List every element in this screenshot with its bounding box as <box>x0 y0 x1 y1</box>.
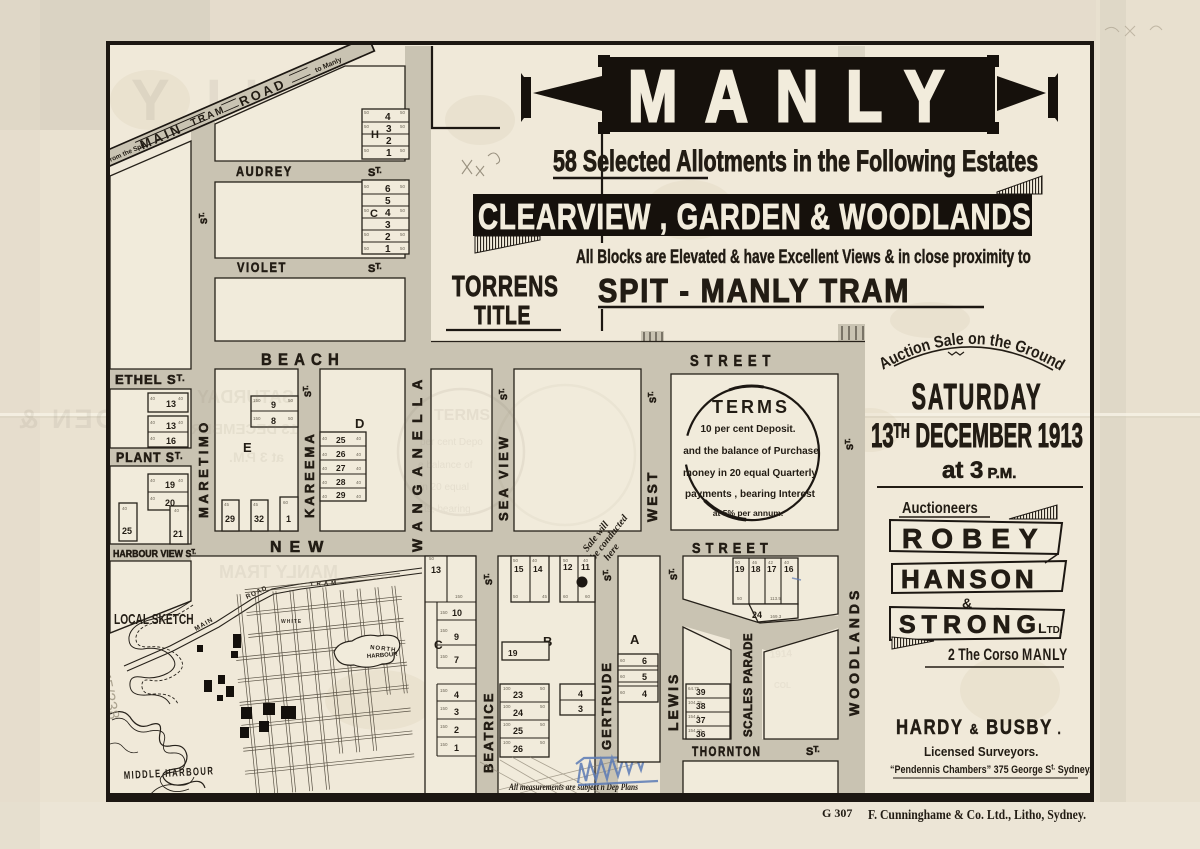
svg-text:11: 11 <box>581 562 590 572</box>
svg-text:100: 100 <box>503 686 511 691</box>
svg-text:50: 50 <box>400 110 406 115</box>
svg-text:13 DECEMBER: 13 DECEMBER <box>191 421 298 438</box>
svg-text:Licensed Surveyors.: Licensed Surveyors. <box>924 744 1038 759</box>
svg-text:40: 40 <box>356 494 362 499</box>
svg-text:at 3 P.M.: at 3 P.M. <box>229 449 284 465</box>
svg-text:SCALES PARADE: SCALES PARADE <box>743 633 755 737</box>
svg-text:150: 150 <box>440 742 448 747</box>
svg-text:ROBEY: ROBEY <box>902 523 1047 554</box>
svg-text:104.75: 104.75 <box>688 700 702 705</box>
svg-text:9: 9 <box>454 632 459 642</box>
svg-text:29: 29 <box>336 490 346 500</box>
svg-text:40: 40 <box>122 506 128 511</box>
svg-text:40: 40 <box>322 436 328 441</box>
svg-text:60: 60 <box>563 594 569 599</box>
svg-text:STREET: STREET <box>690 353 776 370</box>
svg-text:17: 17 <box>767 564 777 574</box>
svg-text:5: 5 <box>385 196 391 207</box>
svg-text:113.5: 113.5 <box>770 596 781 601</box>
svg-text:150: 150 <box>253 398 261 403</box>
svg-text:payments , bearing Interest: payments , bearing Interest <box>685 489 816 500</box>
svg-text:50: 50 <box>364 110 370 115</box>
svg-text:14: 14 <box>533 564 543 574</box>
svg-text:50: 50 <box>364 232 370 237</box>
svg-text:50: 50 <box>364 124 370 129</box>
svg-text:CLEARVIEW , GARDEN & WOODLANDS: CLEARVIEW , GARDEN & WOODLANDS <box>478 197 1031 237</box>
svg-text:40: 40 <box>174 508 180 513</box>
svg-text:60: 60 <box>283 500 289 505</box>
svg-text:WHITE: WHITE <box>281 619 302 625</box>
svg-text:4: 4 <box>578 689 583 699</box>
svg-text:100: 100 <box>503 704 511 709</box>
svg-text:150: 150 <box>440 610 448 615</box>
svg-text:VIOLET: VIOLET <box>237 260 287 275</box>
svg-text:6: 6 <box>385 184 391 195</box>
svg-text:100: 100 <box>503 740 511 745</box>
svg-text:16: 16 <box>784 564 794 574</box>
svg-text:6: 6 <box>642 656 647 666</box>
svg-text:KAREEMA: KAREEMA <box>302 431 317 518</box>
svg-text:40: 40 <box>150 420 156 425</box>
svg-text:SPIT - MANLY TRAM: SPIT - MANLY TRAM <box>598 272 910 309</box>
svg-text:16: 16 <box>166 436 176 446</box>
svg-text:STREET: STREET <box>692 539 773 556</box>
svg-text:4: 4 <box>454 690 459 700</box>
svg-text:A: A <box>630 632 640 647</box>
svg-text:50: 50 <box>400 232 406 237</box>
svg-text:STRONG: STRONG <box>899 611 1042 639</box>
svg-text:BEATRICE: BEATRICE <box>481 692 496 773</box>
svg-text:12: 12 <box>563 562 573 572</box>
svg-text:21: 21 <box>173 529 183 539</box>
svg-text:50: 50 <box>400 246 406 251</box>
svg-text:SATURDAY: SATURDAY <box>912 377 1043 417</box>
svg-text:PLANT ST.: PLANT ST. <box>116 449 183 465</box>
svg-text:25: 25 <box>336 435 346 445</box>
svg-text:TITLE: TITLE <box>474 300 531 330</box>
svg-text:TERMS: TERMS <box>434 407 490 424</box>
svg-text:50: 50 <box>429 556 435 561</box>
svg-text:50: 50 <box>513 558 519 563</box>
svg-text:154.10: 154.10 <box>688 728 702 733</box>
svg-text:SATURDAY: SATURDAY <box>197 387 294 407</box>
svg-text:1: 1 <box>286 514 291 524</box>
svg-text:150: 150 <box>440 688 448 693</box>
svg-text:3: 3 <box>578 704 583 714</box>
svg-text:50: 50 <box>288 398 294 403</box>
svg-text:C: C <box>434 638 443 652</box>
svg-text:G 307: G 307 <box>822 806 852 820</box>
svg-text:40: 40 <box>150 496 156 501</box>
svg-text:60: 60 <box>620 690 626 695</box>
svg-text:40: 40 <box>150 436 156 441</box>
svg-text:25: 25 <box>513 726 523 736</box>
svg-text:40: 40 <box>322 466 328 471</box>
svg-text:46: 46 <box>752 560 758 565</box>
svg-text:13: 13 <box>431 565 441 575</box>
svg-text:13: 13 <box>166 421 176 431</box>
svg-text:40: 40 <box>784 560 790 565</box>
svg-text:18: 18 <box>751 564 761 574</box>
svg-text:40: 40 <box>322 452 328 457</box>
svg-text:50: 50 <box>400 208 406 213</box>
svg-text:150: 150 <box>440 628 448 633</box>
svg-text:40: 40 <box>356 466 362 471</box>
svg-text:GERTRUDE: GERTRUDE <box>599 661 614 750</box>
svg-text:and the balance of Purchase: and the balance of Purchase <box>683 446 819 457</box>
svg-text:3: 3 <box>386 124 392 135</box>
svg-text:150: 150 <box>440 724 448 729</box>
svg-text:45: 45 <box>253 502 259 507</box>
svg-text:50: 50 <box>540 722 546 727</box>
svg-text:50: 50 <box>364 208 370 213</box>
svg-text:in 20 equal: in 20 equal <box>420 482 469 493</box>
svg-text:40: 40 <box>532 558 538 563</box>
svg-text:13: 13 <box>166 399 176 409</box>
svg-text:BEACH: BEACH <box>261 351 345 369</box>
svg-text:150: 150 <box>455 594 463 599</box>
svg-text:50: 50 <box>400 184 406 189</box>
svg-text:40: 40 <box>356 452 362 457</box>
svg-text:H: H <box>371 129 379 141</box>
svg-text:1: 1 <box>454 743 459 753</box>
svg-text:32: 32 <box>254 514 264 524</box>
svg-text:1: 1 <box>386 148 392 159</box>
svg-text:e balance of: e balance of <box>418 460 473 471</box>
svg-text:150: 150 <box>440 654 448 659</box>
svg-text:50: 50 <box>364 148 370 153</box>
svg-text:ETHEL ST.: ETHEL ST. <box>115 372 186 387</box>
svg-text:29: 29 <box>225 514 235 524</box>
svg-text:50: 50 <box>540 686 546 691</box>
svg-text:MANLY: MANLY <box>628 55 972 136</box>
svg-text:40: 40 <box>322 480 328 485</box>
svg-text:“Pendennis Chambers” 375 Georg: “Pendennis Chambers” 375 George St. Sydn… <box>890 762 1092 776</box>
svg-text:at 5% per annum.: at 5% per annum. <box>713 508 783 518</box>
svg-text:ts, bearing: ts, bearing <box>424 504 471 515</box>
svg-text:COL: COL <box>774 681 791 690</box>
svg-text:58 Selected Allotments in the: 58 Selected Allotments in the Following … <box>553 143 1038 178</box>
svg-text:150: 150 <box>253 416 261 421</box>
svg-text:40: 40 <box>178 420 184 425</box>
svg-text:2: 2 <box>454 725 459 735</box>
svg-text:60: 60 <box>585 594 591 599</box>
svg-text:MANLY TRAM: MANLY TRAM <box>219 562 338 582</box>
svg-text:1: 1 <box>385 244 391 255</box>
svg-text:25: 25 <box>122 526 132 536</box>
svg-text:C: C <box>370 208 378 220</box>
svg-text:WEST: WEST <box>644 470 660 522</box>
svg-text:WOODLANDS: WOODLANDS <box>846 587 862 716</box>
svg-text:40: 40 <box>150 478 156 483</box>
svg-text:42: 42 <box>768 560 774 565</box>
svg-text:2: 2 <box>386 136 392 147</box>
svg-text:23: 23 <box>513 690 523 700</box>
svg-text:45: 45 <box>542 594 548 599</box>
svg-text:4: 4 <box>385 112 391 123</box>
svg-text:2 The Corso MANLY: 2 The Corso MANLY <box>948 646 1068 664</box>
svg-text:50: 50 <box>540 704 546 709</box>
svg-text:50: 50 <box>513 594 519 599</box>
svg-text:64.75: 64.75 <box>688 686 700 691</box>
svg-text:50: 50 <box>737 596 743 601</box>
svg-text:THORNTON: THORNTON <box>692 743 761 759</box>
svg-text:60: 60 <box>620 658 626 663</box>
svg-text:40: 40 <box>356 480 362 485</box>
svg-text:154.6: 154.6 <box>688 714 700 719</box>
svg-text:150: 150 <box>440 706 448 711</box>
svg-text:TERMS: TERMS <box>712 397 790 417</box>
svg-text:26: 26 <box>336 449 346 459</box>
svg-text:10 per cent Deposit.: 10 per cent Deposit. <box>700 424 795 435</box>
svg-text:HARDY & BUSBY .: HARDY & BUSBY . <box>896 716 1062 739</box>
svg-text:50: 50 <box>540 740 546 745</box>
svg-text:HANSON: HANSON <box>901 564 1038 594</box>
svg-text:19: 19 <box>735 564 745 574</box>
svg-text:1914: 1914 <box>769 648 792 661</box>
svg-text:7: 7 <box>454 655 459 665</box>
svg-text:40: 40 <box>178 478 184 483</box>
svg-text:Auctioneers: Auctioneers <box>902 500 978 517</box>
svg-text:40: 40 <box>178 396 184 401</box>
svg-text:60: 60 <box>620 674 626 679</box>
svg-text:D: D <box>355 416 364 431</box>
svg-text:50: 50 <box>288 416 294 421</box>
svg-text:50: 50 <box>400 124 406 129</box>
svg-text:100: 100 <box>503 722 511 727</box>
svg-text:10: 10 <box>452 608 462 618</box>
svg-text:2: 2 <box>385 232 391 243</box>
svg-text:DEN &: DEN & <box>16 404 115 434</box>
svg-text:money in 20 equal Quarterly: money in 20 equal Quarterly <box>683 468 817 479</box>
svg-text:40: 40 <box>583 558 589 563</box>
svg-text:24: 24 <box>752 610 762 620</box>
svg-text:40: 40 <box>150 396 156 401</box>
svg-text:19: 19 <box>165 480 175 490</box>
svg-text:40: 40 <box>322 494 328 499</box>
svg-text:3: 3 <box>385 220 391 231</box>
svg-text:AUDREY: AUDREY <box>236 164 293 179</box>
svg-text:50: 50 <box>563 558 569 563</box>
svg-text:NEW: NEW <box>270 539 331 556</box>
svg-text:4: 4 <box>385 208 391 219</box>
svg-text:4: 4 <box>642 689 647 699</box>
svg-text:45: 45 <box>224 502 230 507</box>
svg-text:19: 19 <box>508 648 518 658</box>
svg-text:F. Cunninghame & Co. Ltd., Lit: F. Cunninghame & Co. Ltd., Litho, Sydney… <box>868 807 1086 822</box>
svg-text:LEWIS: LEWIS <box>665 672 681 731</box>
svg-text:15: 15 <box>514 564 524 574</box>
svg-text:50: 50 <box>364 184 370 189</box>
svg-text:50: 50 <box>400 148 406 153</box>
svg-text:All Blocks are Elevated & have: All Blocks are Elevated & have Excellent… <box>576 246 1031 268</box>
svg-text:50: 50 <box>735 560 741 565</box>
svg-text:27: 27 <box>336 463 346 473</box>
svg-text:3: 3 <box>454 707 459 717</box>
svg-text:TORRENS: TORRENS <box>452 271 559 303</box>
svg-text:5: 5 <box>642 672 647 682</box>
svg-text:24: 24 <box>513 708 523 718</box>
svg-text:50: 50 <box>364 246 370 251</box>
svg-text:26: 26 <box>513 744 523 754</box>
svg-text:per cent Depo: per cent Depo <box>420 437 483 448</box>
svg-text:HARBOUR VIEW ST.: HARBOUR VIEW ST. <box>113 548 196 560</box>
svg-text:28: 28 <box>336 477 346 487</box>
svg-text:40: 40 <box>356 436 362 441</box>
svg-text:169.3: 169.3 <box>770 614 782 619</box>
